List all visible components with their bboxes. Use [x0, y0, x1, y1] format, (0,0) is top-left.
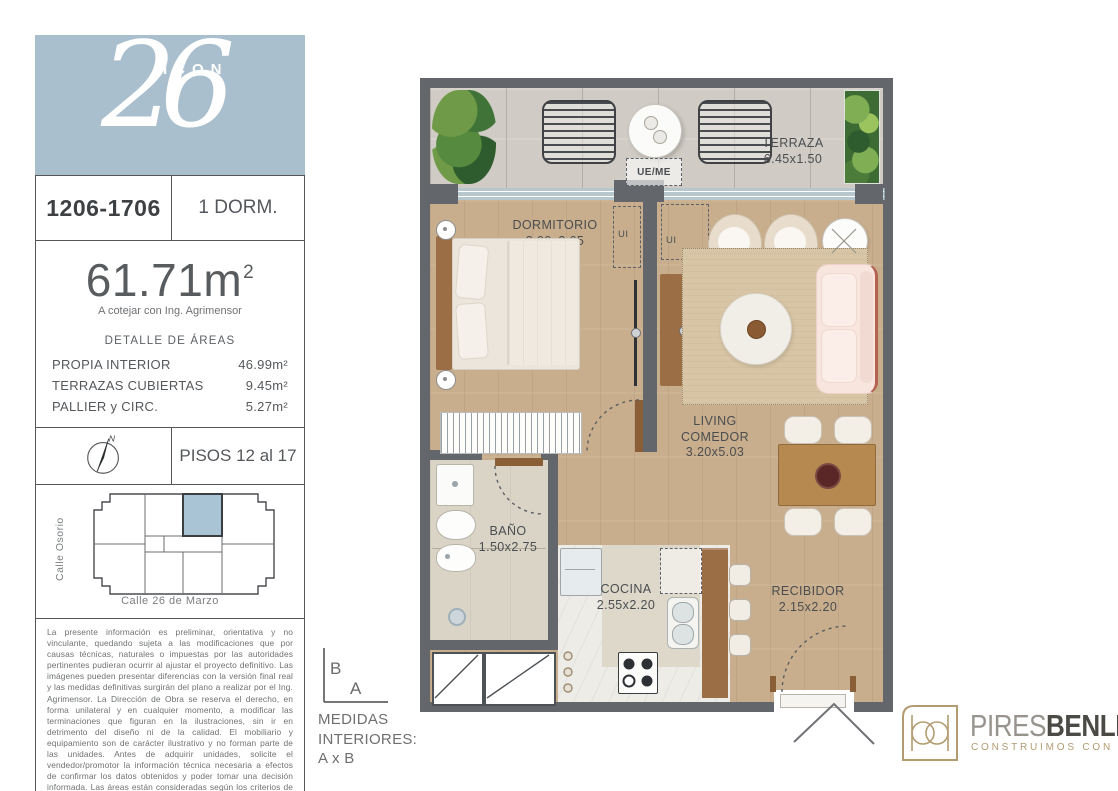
area-details-title: DETALLE DE ÁREAS: [36, 335, 304, 347]
room-label-terraza: TERRAZA 6.45x1.50: [738, 136, 848, 167]
area-row-label: TERRAZAS CUBIERTAS: [52, 378, 204, 393]
room-label-bano: BAÑO 1.50x2.75: [458, 524, 558, 555]
bed: [452, 238, 580, 370]
bedroom-tv-mount: [631, 328, 641, 338]
room-label-recibidor: RECIBIDOR 2.15x2.20: [748, 584, 868, 615]
building-map-section: Calle Osorio Calle 26 de Marzo: [36, 484, 304, 618]
table-row: PROPIA INTERIOR 46.99m²: [52, 357, 288, 372]
sofa-cushion: [821, 329, 857, 383]
room-name: LIVING COMEDOR: [667, 414, 763, 445]
brand-name-primary: PIRES: [970, 708, 1046, 743]
total-area: 61.71m2: [36, 257, 304, 303]
highlighted-unit: [183, 494, 222, 536]
sofa: [816, 264, 878, 394]
unit-type: 1 DORM.: [172, 176, 304, 240]
bar-stool: [729, 634, 751, 656]
room-dims: 1.50x2.75: [458, 540, 558, 556]
room-name: DORMITORIO: [490, 218, 620, 234]
room-name: TERRAZA: [738, 136, 848, 152]
developer-brand: PIRESBENLIAN CONSTRUIMOS CON ESTILO: [900, 700, 1105, 770]
sofa-back: [860, 271, 873, 383]
duvet: [507, 241, 577, 365]
wall-pier: [855, 184, 883, 204]
floor-plan-sheet: 26 ICON 1206-1706 1 DORM. 61.71m2 A cote…: [0, 0, 1118, 791]
total-area-value: 61.71m: [86, 254, 242, 306]
project-logo-name: ICON: [163, 61, 229, 78]
street-label-left: Calle Osorio: [54, 507, 68, 591]
sidebar: 26 ICON 1206-1706 1 DORM. 61.71m2 A cote…: [35, 35, 305, 791]
room-dims: 3.20x5.03: [655, 445, 775, 461]
nightstand-lamp: [436, 220, 456, 240]
dining-chair: [834, 508, 872, 536]
area-row-value: 9.45m²: [246, 378, 288, 393]
measures-note: MEDIDAS INTERIORES: A x B: [318, 710, 448, 769]
compass-row: N PISOS 12 al 17: [36, 427, 304, 484]
project-logo-number: 26: [101, 35, 219, 151]
wall-pier: [430, 184, 458, 204]
axis-a-label: A: [350, 679, 362, 698]
wardrobe: [440, 412, 582, 454]
dining-chair: [784, 508, 822, 536]
measures-line: MEDIDAS: [318, 710, 448, 730]
street-label-bottom: Calle 26 de Marzo: [36, 595, 304, 607]
building-footprint-map: [82, 491, 286, 597]
total-area-sup: 2: [243, 262, 254, 283]
table-row: TERRAZAS CUBIERTAS 9.45m²: [52, 378, 288, 393]
area-note: A cotejar con Ing. Agrimensor: [36, 305, 304, 317]
room-name: RECIBIDOR: [748, 584, 868, 600]
brand-name: PIRESBENLIAN: [970, 708, 1118, 744]
compass-north-label: N: [108, 434, 115, 444]
brand-name-secondary: BENLIAN: [1046, 708, 1118, 743]
dining-chair: [834, 416, 872, 444]
terrace-table: [628, 104, 682, 158]
kitchen-island: [702, 548, 728, 698]
compass-icon: N: [81, 433, 127, 479]
bedroom-door-leaf: [635, 400, 643, 452]
duct-shaft: [484, 652, 556, 706]
sidebar-panel: 1206-1706 1 DORM. 61.71m2 A cotejar con …: [35, 175, 305, 791]
planter: [844, 90, 880, 184]
duct-shaft: [432, 652, 484, 706]
area-section: 61.71m2 A cotejar con Ing. Agrimensor DE…: [36, 240, 304, 427]
room-name: BAÑO: [458, 524, 558, 540]
project-logo: 26 ICON: [35, 35, 305, 175]
nightstand-lamp: [436, 370, 456, 390]
ueme-unit: UE/ME: [626, 158, 682, 186]
room-label-cocina: COCINA 2.55x2.20: [572, 582, 680, 613]
shower-drain: [448, 608, 466, 626]
door-jamb: [770, 676, 776, 692]
axis-b-label: B: [330, 659, 341, 678]
ui-unit-bedroom: UI: [613, 206, 641, 268]
ui-label: UI: [666, 235, 677, 246]
legal-section: La presente información es preliminar, o…: [36, 618, 304, 791]
pb-monogram-icon: [900, 703, 960, 763]
plant: [432, 90, 496, 184]
entry-direction-icon: [788, 696, 882, 748]
measures-line: A x B: [318, 749, 448, 769]
room-dims: 6.45x1.50: [738, 152, 848, 168]
brand-tagline: CONSTRUIMOS CON ESTILO: [971, 742, 1118, 753]
room-dims: 2.55x2.20: [572, 598, 680, 614]
bed-headboard: [436, 236, 452, 370]
lounge-chair: [542, 100, 616, 164]
bathroom-wall: [430, 640, 558, 650]
floors-label: PISOS 12 al 17: [172, 428, 304, 484]
area-row-value: 5.27m²: [246, 399, 288, 414]
compass-cell: N: [36, 428, 172, 484]
table-row: PALLIER y CIRC. 5.27m²: [52, 399, 288, 414]
bathroom-door-leaf: [495, 458, 543, 466]
ui-label: UI: [618, 229, 629, 240]
room-name: COCINA: [572, 582, 680, 598]
room-dims: 2.15x2.20: [748, 600, 868, 616]
door-jamb: [850, 676, 856, 692]
pillow: [455, 302, 489, 360]
floor-plan: UE/ME TERRAZA 6.45x1.50 DORMITORIO 3.00x…: [420, 78, 893, 712]
bar-stool: [729, 564, 751, 586]
legal-disclaimer: La presente información es preliminar, o…: [47, 627, 293, 791]
measure-axis-icon: B A: [314, 642, 404, 708]
unit-row: 1206-1706 1 DORM.: [36, 176, 304, 240]
stove: [618, 652, 658, 694]
area-row-value: 46.99m²: [238, 357, 288, 372]
bathroom-sink: [436, 464, 474, 506]
area-row-label: PALLIER y CIRC.: [52, 399, 158, 414]
sofa-cushion: [821, 273, 857, 327]
unit-numbers: 1206-1706: [36, 176, 172, 240]
room-label-living: LIVING COMEDOR 3.20x5.03: [655, 414, 775, 461]
measures-line: INTERIORES:: [318, 730, 448, 750]
area-row-label: PROPIA INTERIOR: [52, 357, 171, 372]
sink-bowl: [672, 624, 694, 645]
area-details-table: PROPIA INTERIOR 46.99m² TERRAZAS CUBIERT…: [52, 357, 288, 414]
decor-bowl: [747, 320, 766, 339]
dining-chair: [784, 416, 822, 444]
fruit-bowl: [815, 463, 841, 489]
pillow: [455, 244, 490, 300]
